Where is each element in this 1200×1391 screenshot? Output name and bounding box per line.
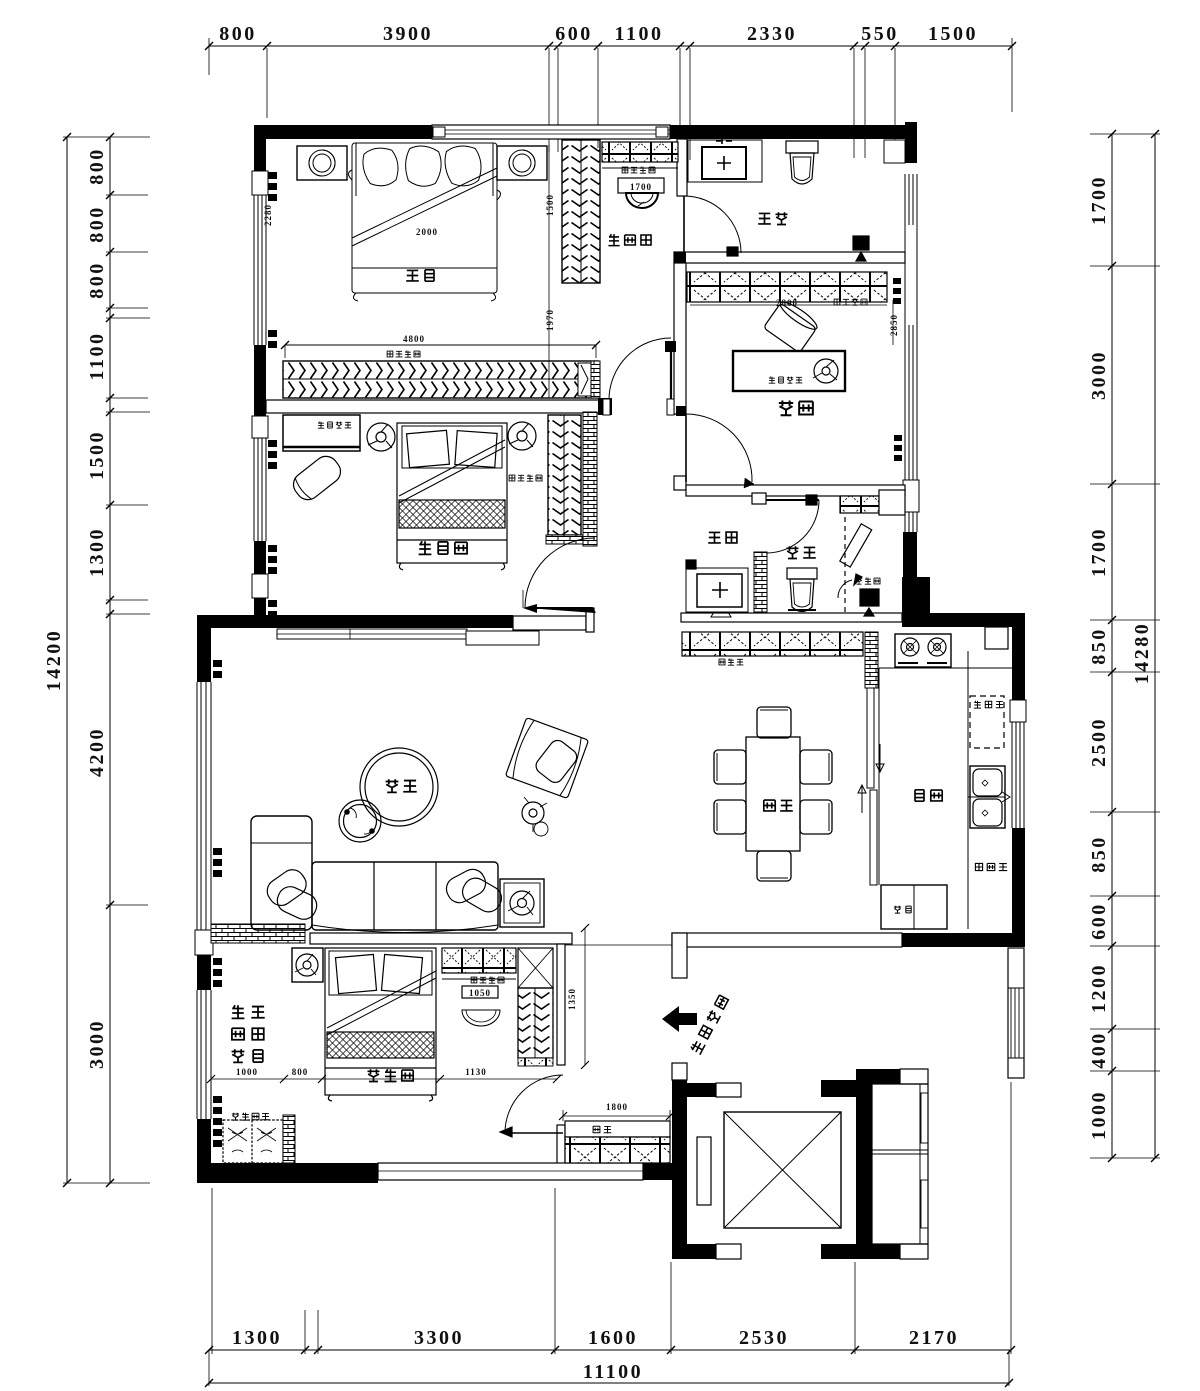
svg-text:600: 600: [555, 23, 593, 45]
svg-text:4800: 4800: [403, 334, 425, 344]
svg-text:1700: 1700: [1088, 175, 1110, 225]
svg-text:2850: 2850: [889, 314, 899, 336]
svg-text:1050: 1050: [469, 988, 491, 998]
svg-text:1700: 1700: [630, 182, 652, 192]
svg-text:1500: 1500: [928, 23, 978, 45]
svg-text:11100: 11100: [583, 1361, 643, 1383]
svg-text:2170: 2170: [909, 1327, 959, 1349]
svg-text:1100: 1100: [615, 23, 664, 45]
svg-text:3000: 3000: [1088, 350, 1110, 400]
svg-text:1200: 1200: [1088, 963, 1110, 1013]
svg-text:800: 800: [86, 261, 108, 299]
svg-text:14200: 14200: [43, 629, 65, 692]
svg-text:400: 400: [1088, 1031, 1110, 1069]
svg-text:1300: 1300: [86, 527, 108, 577]
svg-text:850: 850: [1088, 627, 1110, 665]
svg-text:1130: 1130: [465, 1067, 487, 1077]
svg-text:800: 800: [86, 205, 108, 243]
svg-text:14280: 14280: [1131, 622, 1153, 685]
svg-text:1970: 1970: [545, 309, 555, 331]
svg-text:2330: 2330: [747, 23, 797, 45]
svg-text:800: 800: [219, 23, 257, 45]
svg-text:1300: 1300: [232, 1327, 282, 1349]
svg-text:1600: 1600: [588, 1327, 638, 1349]
svg-text:1500: 1500: [86, 430, 108, 480]
svg-text:2280: 2280: [263, 204, 273, 226]
svg-text:2530: 2530: [739, 1327, 789, 1349]
svg-text:1350: 1350: [567, 988, 577, 1010]
svg-text:1800: 1800: [606, 1102, 628, 1112]
svg-text:2800: 2800: [776, 298, 798, 308]
svg-text:2000: 2000: [416, 227, 438, 237]
svg-text:3000: 3000: [86, 1019, 108, 1069]
svg-text:3900: 3900: [383, 23, 433, 45]
svg-text:800: 800: [292, 1067, 309, 1077]
svg-text:850: 850: [1088, 835, 1110, 873]
svg-text:1500: 1500: [545, 194, 555, 216]
svg-text:1700: 1700: [1088, 527, 1110, 577]
svg-text:4200: 4200: [86, 727, 108, 777]
svg-text:1100: 1100: [86, 332, 108, 381]
svg-text:550: 550: [861, 23, 899, 45]
svg-text:3300: 3300: [414, 1327, 464, 1349]
svg-text:600: 600: [1088, 902, 1110, 940]
svg-text:800: 800: [86, 147, 108, 185]
svg-text:1000: 1000: [236, 1067, 258, 1077]
svg-text:1000: 1000: [1088, 1090, 1110, 1140]
svg-text:2500: 2500: [1088, 717, 1110, 767]
